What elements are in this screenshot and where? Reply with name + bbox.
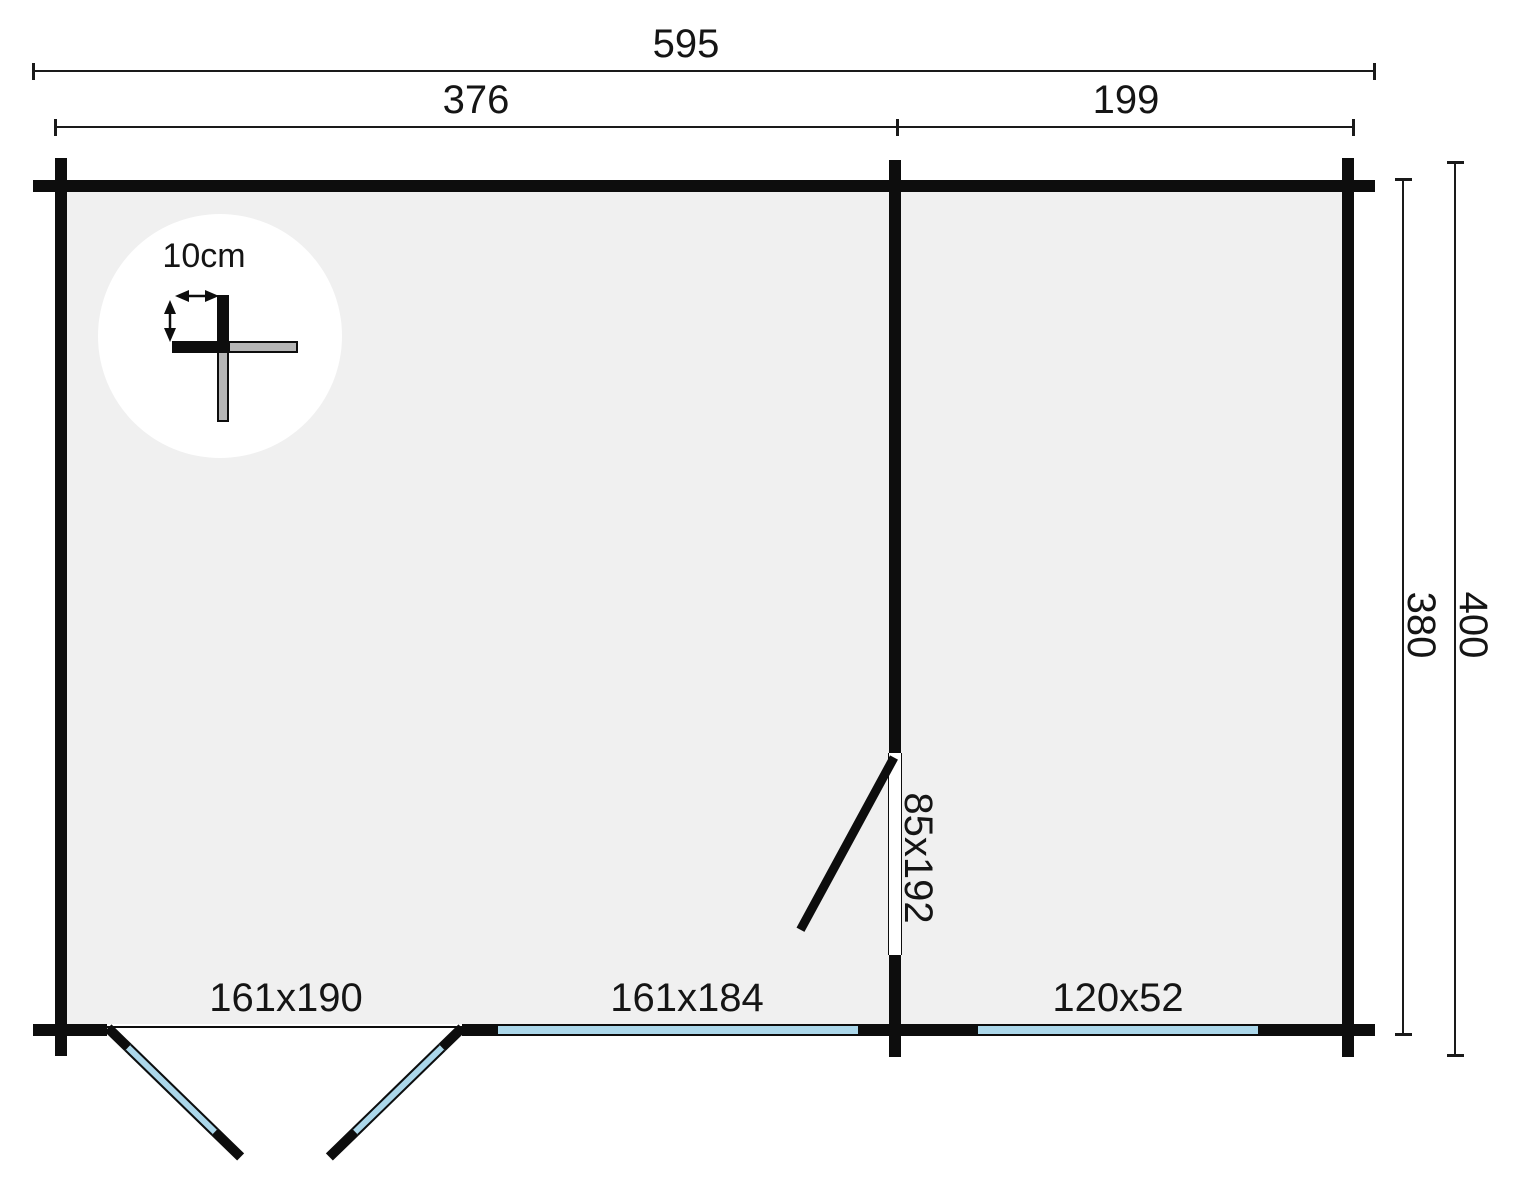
front-window-large-label: 161x184 [587,976,787,1020]
front-door-leaf-right [326,1024,466,1160]
dimension-tick [1395,1033,1412,1036]
door-threshold-line [107,1026,462,1028]
door-leaf-glazing [125,1044,219,1136]
front-door-leaf-left [105,1024,245,1160]
dimension-tick [54,119,57,136]
front-double-door-label: 161x190 [186,976,386,1020]
wall-left [55,158,67,1056]
dimension-tick [1447,1054,1464,1057]
wall-top [33,180,1375,192]
front-double-door-opening [107,1024,462,1036]
right-room-width-label: 199 [1026,78,1226,122]
dimension-tick [1373,63,1376,80]
dimension-tick [1395,178,1412,181]
front-window-small-label: 120x52 [1018,976,1218,1020]
door-leaf-tip-block [211,1128,244,1160]
dimension-line-room-widths [55,126,1354,128]
door-leaf-glazing [352,1044,446,1136]
dimension-line-total-width [33,70,1375,72]
outer-depth-label: 400 [1451,525,1495,725]
front-window-large [498,1024,858,1036]
wall-thickness-label: 10cm [154,236,254,276]
dimension-tick [896,119,899,136]
measure-arrows-icon [155,282,275,352]
wall-right [1342,158,1354,1057]
door-leaf-tip-block [326,1128,359,1160]
dimension-tick [1352,119,1355,136]
left-room-width-label: 376 [376,78,576,122]
inner-depth-label: 380 [1399,525,1443,725]
detail-log-end-vertical [217,350,229,422]
dimension-tick [1447,161,1464,164]
wall-interior-lower [889,955,901,1057]
interior-door-label: 85x192 [896,758,940,958]
wall-interior-upper [889,160,901,753]
dimension-tick [32,63,35,80]
total-width-label: 595 [586,22,786,66]
floor-plan-canvas: 10cm [0,0,1530,1188]
front-window-small [978,1024,1258,1036]
